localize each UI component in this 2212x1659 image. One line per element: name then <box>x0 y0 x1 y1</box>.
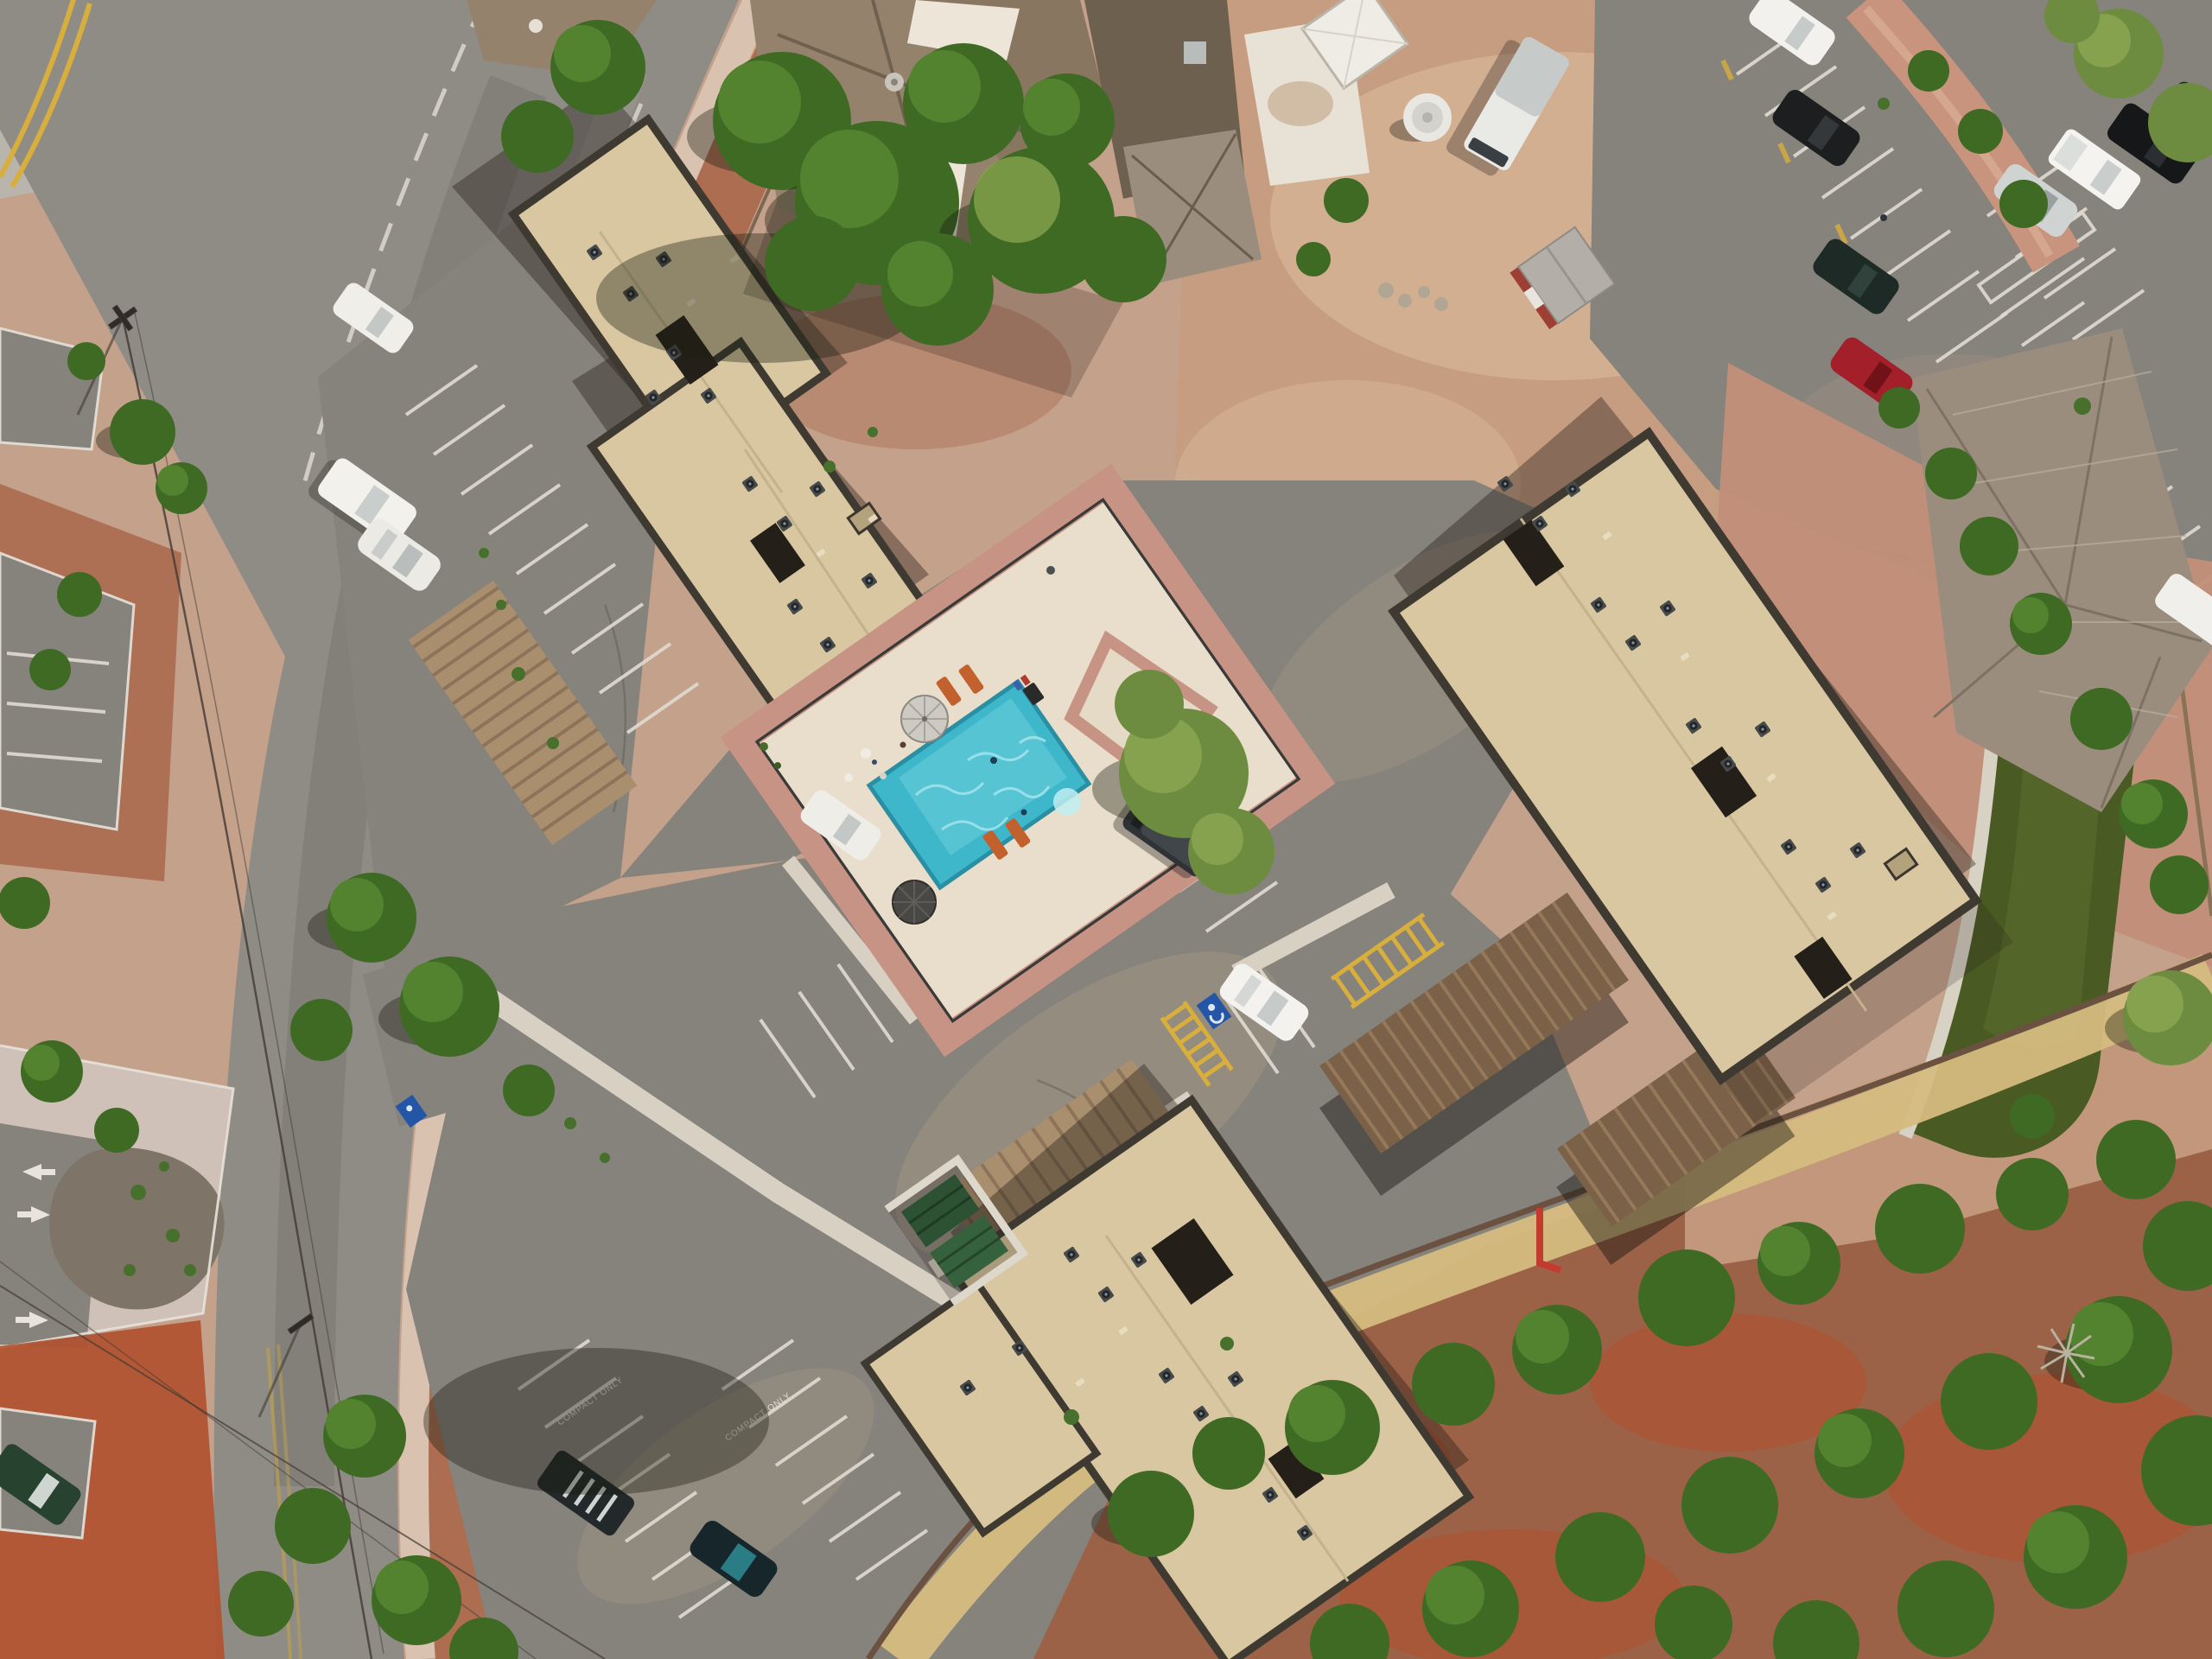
pool-umbrella <box>893 880 936 924</box>
pedestrian <box>1880 214 1887 221</box>
aerial-photo: Top-down aerial photograph: three tan fl… <box>0 0 2212 1659</box>
aerial-scene: COMPACT ONLY COMPACT ONLY <box>0 0 2212 1659</box>
manhole <box>1046 566 1055 575</box>
pool-umbrella <box>901 696 948 742</box>
